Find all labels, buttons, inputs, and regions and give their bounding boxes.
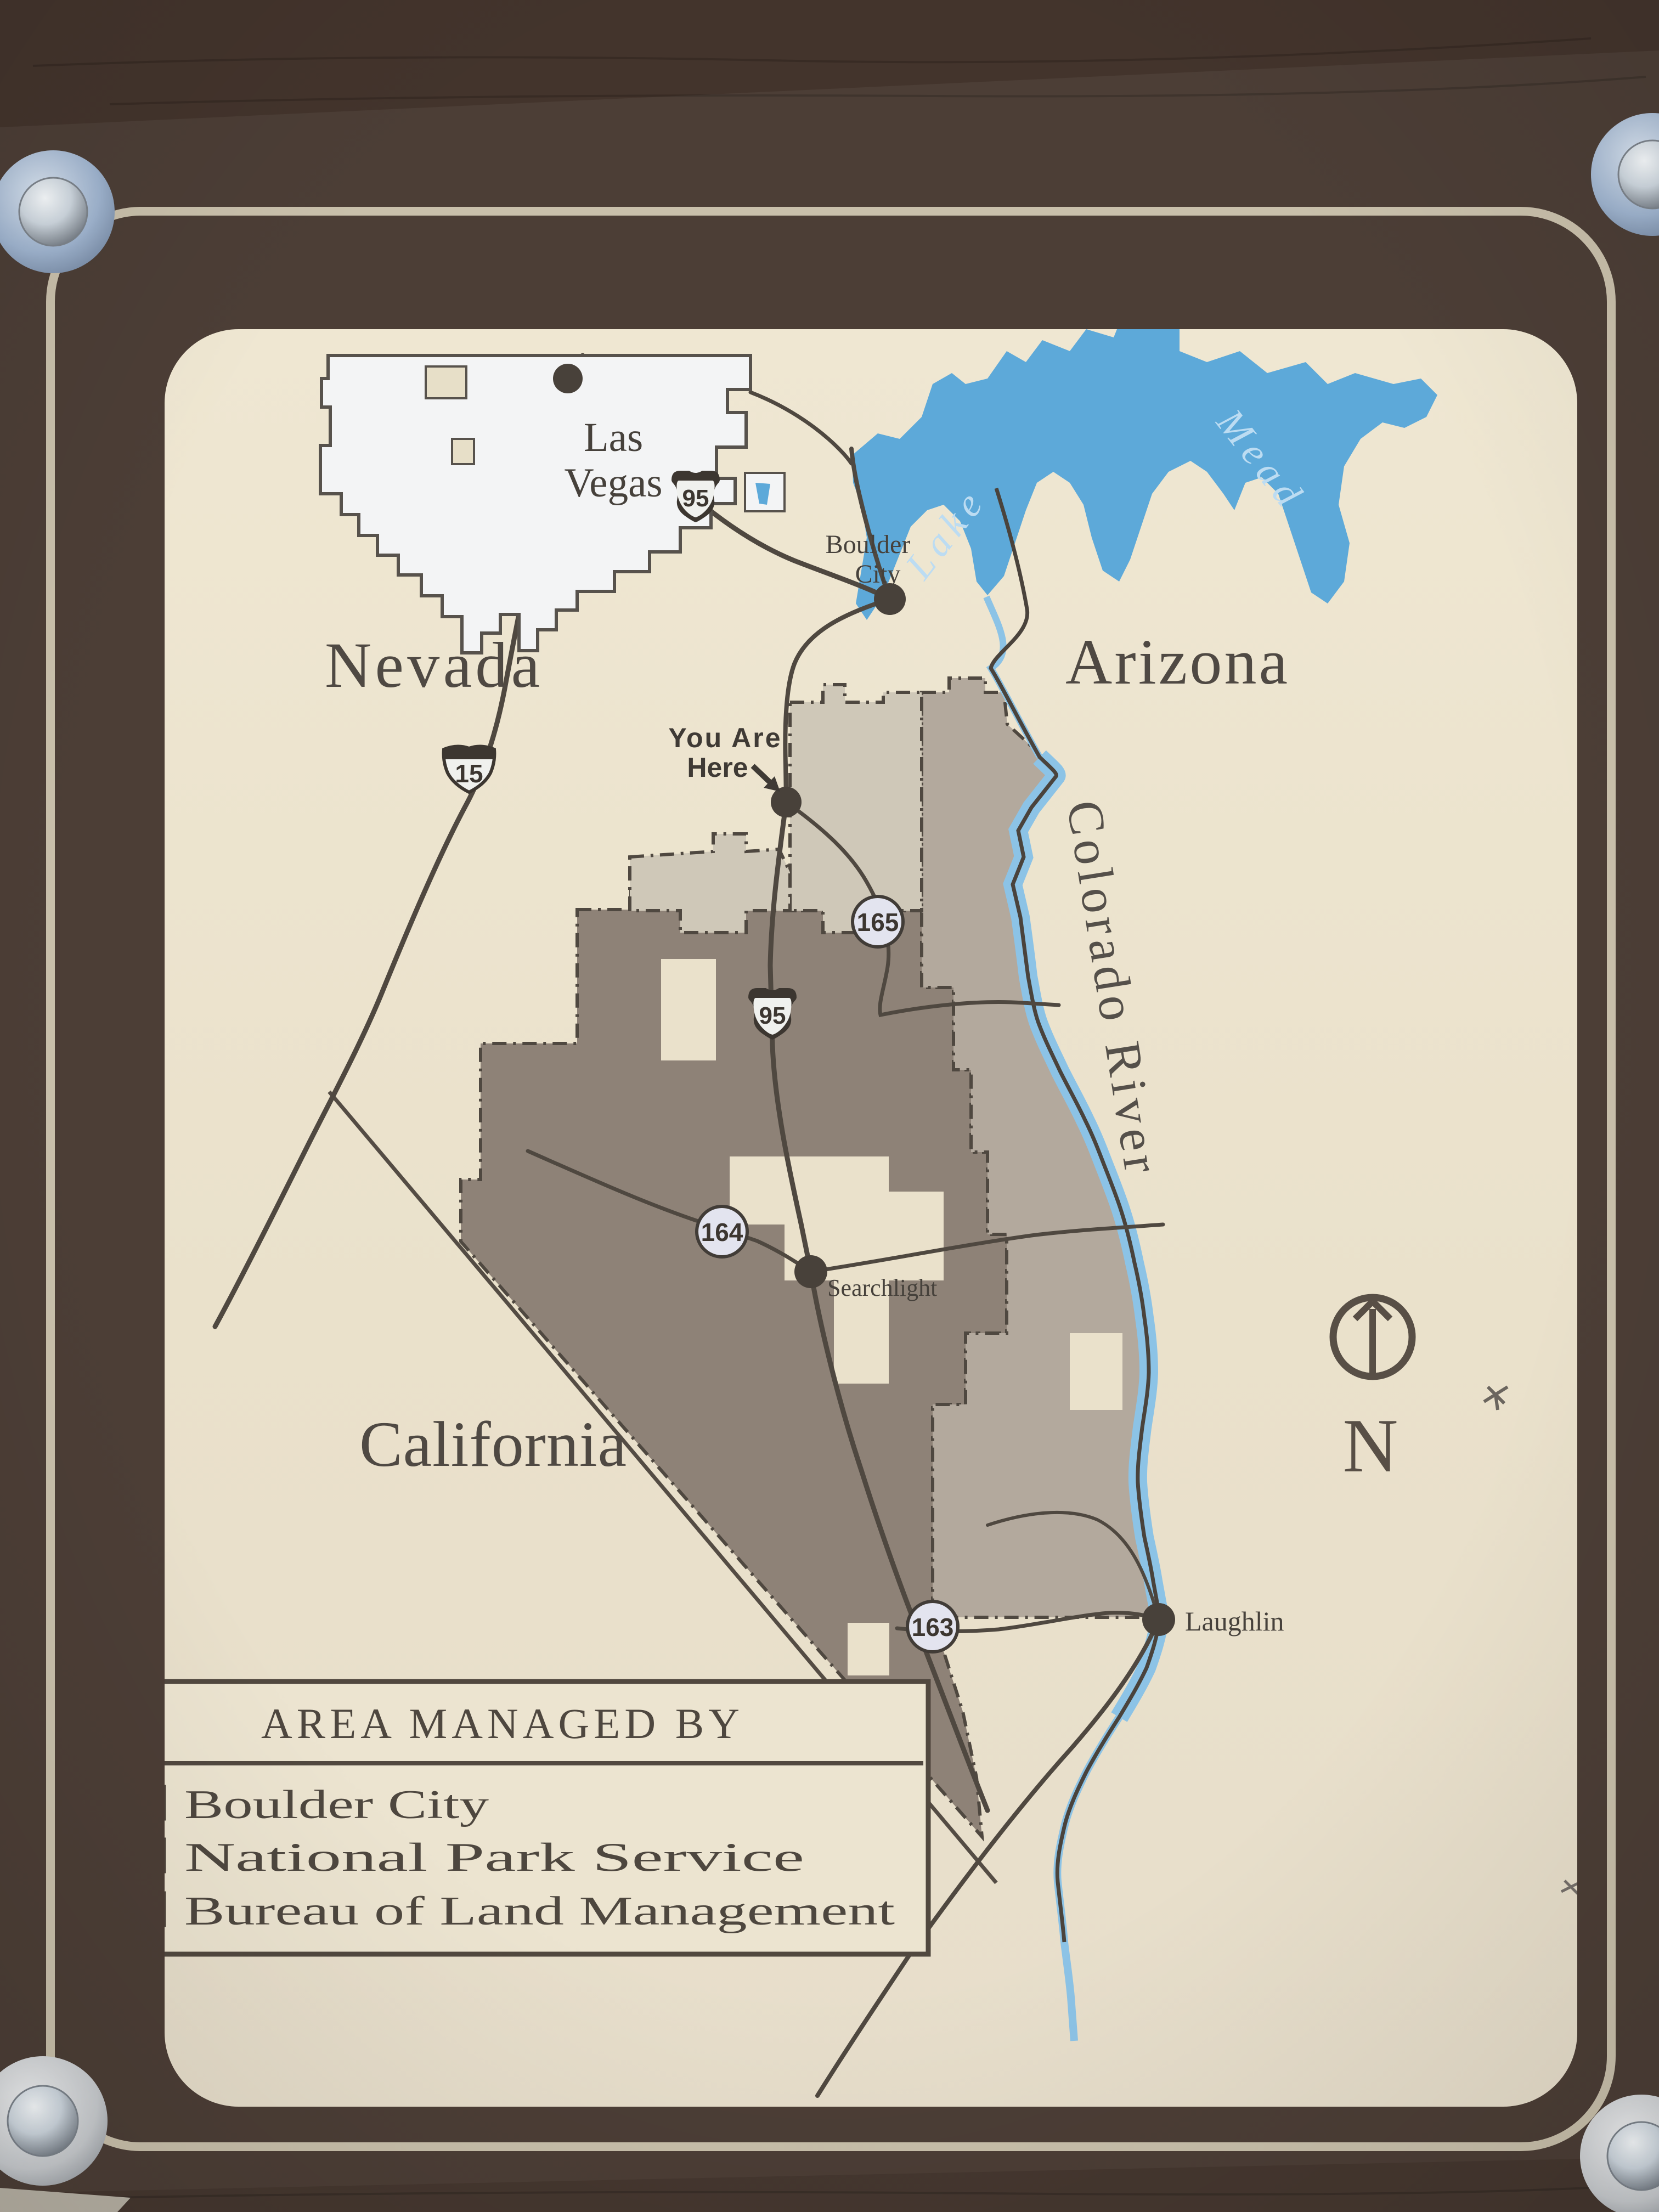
photo-of-trailhead-map-sign: Lake Mead Colorado River Nevada Arizona …	[0, 0, 1659, 2212]
photo-vignette	[0, 0, 1659, 2212]
